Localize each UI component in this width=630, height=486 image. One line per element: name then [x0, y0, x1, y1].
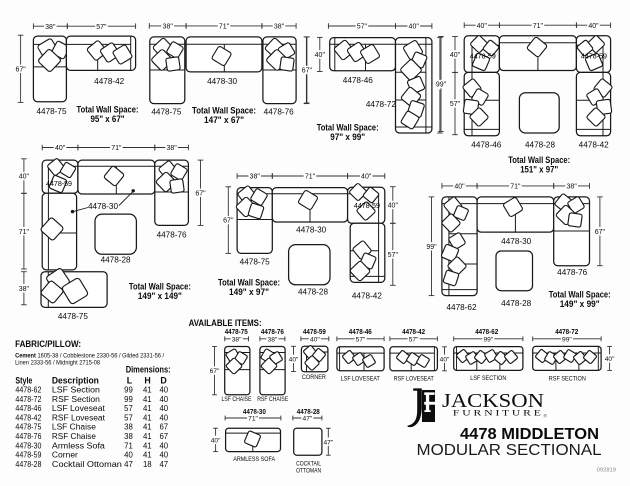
svg-text:4478-76: 4478-76 [264, 108, 294, 117]
svg-text:57": 57" [409, 336, 419, 343]
svg-text:67": 67" [595, 229, 606, 236]
svg-text:RSF Chaise: RSF Chaise [52, 432, 96, 441]
svg-text:4478-59: 4478-59 [46, 179, 72, 188]
svg-text:4478-42: 4478-42 [94, 77, 124, 86]
svg-text:41: 41 [143, 395, 152, 404]
svg-text:149" x 149": 149" x 149" [138, 291, 182, 301]
svg-text:4478-59: 4478-59 [470, 52, 496, 61]
svg-text:4478-59: 4478-59 [581, 52, 607, 61]
svg-text:4478-72: 4478-72 [366, 100, 396, 109]
svg-text:57": 57" [357, 24, 368, 31]
svg-text:4478-30: 4478-30 [88, 202, 118, 211]
svg-text:4478-62: 4478-62 [15, 386, 41, 395]
svg-text:40": 40" [450, 52, 461, 59]
svg-text:40": 40" [310, 336, 320, 343]
svg-text:RSF Section: RSF Section [52, 395, 100, 404]
svg-text:Dimensions:: Dimensions: [126, 365, 171, 375]
svg-text:Corner: Corner [52, 451, 78, 460]
svg-text:67": 67" [223, 218, 234, 225]
svg-text:4478 MIDDLETON: 4478 MIDDLETON [460, 426, 599, 443]
svg-text:67": 67" [15, 66, 26, 73]
svg-text:4478-62: 4478-62 [446, 303, 476, 312]
svg-text:4478-46: 4478-46 [343, 76, 373, 85]
svg-text:4478-75: 4478-75 [58, 312, 88, 321]
svg-text:LSF Section: LSF Section [52, 386, 100, 395]
svg-text:4478-75: 4478-75 [15, 423, 42, 432]
svg-text:149" x 99": 149" x 99" [560, 299, 600, 309]
svg-text:4478-76: 4478-76 [157, 231, 187, 240]
svg-text:4478-46: 4478-46 [349, 327, 372, 336]
svg-text:4478-42: 4478-42 [15, 413, 41, 422]
svg-text:38": 38" [45, 24, 56, 31]
svg-text:18: 18 [143, 460, 152, 469]
svg-text:40": 40" [315, 52, 326, 59]
svg-text:38": 38" [232, 336, 242, 343]
svg-text:4478-42: 4478-42 [352, 291, 382, 300]
svg-text:4478-42: 4478-42 [579, 141, 609, 150]
svg-text:4478-76: 4478-76 [15, 432, 41, 441]
svg-text:4478-75: 4478-75 [240, 258, 270, 267]
svg-text:CORNER: CORNER [302, 374, 326, 381]
svg-text:40: 40 [159, 441, 168, 450]
svg-text:57": 57" [356, 336, 366, 343]
svg-text:71: 71 [124, 441, 133, 450]
svg-text:41: 41 [143, 432, 152, 441]
svg-text:4478-46: 4478-46 [471, 141, 501, 150]
svg-text:4478-28: 4478-28 [525, 141, 555, 150]
svg-text:40": 40" [289, 357, 299, 364]
svg-text:4478-76: 4478-76 [261, 327, 284, 336]
svg-text:4478-59: 4478-59 [354, 201, 380, 210]
svg-text:MODULAR SECTIONAL: MODULAR SECTIONAL [417, 442, 602, 459]
svg-text:71": 71" [219, 24, 230, 31]
svg-text:Style: Style [15, 376, 32, 386]
svg-text:4478-76: 4478-76 [557, 268, 587, 277]
svg-text:4478-28: 4478-28 [298, 288, 328, 297]
svg-text:41: 41 [143, 423, 152, 432]
svg-text:47: 47 [159, 460, 168, 469]
svg-text:D: D [160, 376, 166, 386]
svg-text:Description: Description [52, 376, 99, 386]
svg-text:41: 41 [143, 386, 152, 395]
svg-text:Linen 2333-56 / Midnight 2715-: Linen 2333-56 / Midnight 2715-08 [15, 360, 100, 367]
svg-text:092819: 092819 [597, 468, 616, 474]
svg-text:4478-30: 4478-30 [207, 77, 237, 86]
svg-text:40": 40" [477, 23, 488, 30]
svg-text:4478-59: 4478-59 [303, 327, 326, 336]
svg-text:67: 67 [159, 423, 168, 432]
svg-text:38": 38" [274, 24, 285, 31]
svg-text:H: H [144, 376, 150, 386]
svg-text:4478-42: 4478-42 [402, 327, 425, 336]
svg-text:57": 57" [388, 252, 399, 259]
svg-text:4478-62: 4478-62 [475, 327, 498, 336]
svg-text:40": 40" [454, 184, 465, 191]
svg-text:41: 41 [143, 404, 152, 413]
svg-text:RSF LOVESEAT: RSF LOVESEAT [394, 376, 434, 383]
svg-text:40": 40" [588, 23, 599, 30]
svg-text:40: 40 [159, 386, 168, 395]
svg-text:4478-72: 4478-72 [15, 395, 41, 404]
svg-text:LSF CHAISE: LSF CHAISE [222, 396, 252, 403]
svg-text:4478-46: 4478-46 [15, 404, 41, 413]
svg-text:151" x 97": 151" x 97" [520, 164, 558, 174]
svg-text:71": 71" [533, 23, 544, 30]
svg-text:40": 40" [361, 174, 372, 181]
svg-text:40": 40" [409, 24, 420, 31]
svg-text:71": 71" [248, 416, 258, 423]
svg-text:38": 38" [250, 174, 261, 181]
svg-text:67": 67" [210, 368, 220, 375]
svg-text:Armless Sofa: Armless Sofa [52, 441, 106, 450]
svg-text:Cement 1605-38 / Cobblestone 2: Cement 1605-38 / Cobblestone 2330-56 / G… [15, 353, 164, 360]
svg-text:4478-30: 4478-30 [296, 226, 326, 235]
svg-text:40": 40" [440, 356, 450, 363]
svg-text:149" x 97": 149" x 97" [229, 287, 269, 297]
svg-text:99: 99 [124, 395, 133, 404]
svg-text:99": 99" [562, 336, 572, 343]
svg-text:99": 99" [483, 336, 493, 343]
svg-text:97" x 99": 97" x 99" [330, 132, 365, 142]
svg-text:40: 40 [159, 451, 168, 460]
svg-text:57": 57" [96, 24, 107, 31]
svg-text:40: 40 [159, 413, 168, 422]
svg-text:4478-72: 4478-72 [555, 327, 578, 336]
svg-text:38: 38 [124, 432, 133, 441]
svg-text:4478-75: 4478-75 [225, 327, 249, 336]
svg-text:OTTOMAN: OTTOMAN [296, 467, 321, 474]
svg-text:99": 99" [426, 244, 437, 251]
svg-text:67": 67" [195, 190, 206, 197]
svg-text:FABRIC/PILLOW:: FABRIC/PILLOW: [15, 339, 81, 349]
svg-text:4478-28: 4478-28 [15, 460, 41, 469]
svg-text:57: 57 [124, 413, 133, 422]
svg-text:40: 40 [159, 404, 168, 413]
svg-text:71": 71" [510, 184, 521, 191]
svg-text:40": 40" [211, 438, 221, 445]
svg-text:Cocktail Ottoman: Cocktail Ottoman [52, 460, 122, 469]
svg-text:40: 40 [124, 451, 133, 460]
svg-text:38: 38 [124, 423, 133, 432]
svg-text:71": 71" [111, 145, 122, 152]
svg-text:41: 41 [143, 451, 152, 460]
svg-text:38": 38" [166, 145, 177, 152]
svg-text:71": 71" [305, 174, 316, 181]
svg-text:40": 40" [388, 203, 399, 210]
svg-text:47": 47" [303, 416, 313, 423]
svg-text:41: 41 [143, 441, 152, 450]
svg-text:4478-75: 4478-75 [151, 108, 181, 117]
svg-text:57": 57" [450, 101, 461, 108]
svg-text:40: 40 [159, 395, 168, 404]
svg-text:RSF Loveseat: RSF Loveseat [52, 413, 106, 422]
svg-text:ARMLESS SOFA: ARMLESS SOFA [233, 456, 275, 463]
svg-text:67: 67 [159, 432, 168, 441]
svg-text:95" x 67": 95" x 67" [91, 114, 125, 124]
svg-text:38": 38" [268, 336, 278, 343]
svg-text:67": 67" [302, 68, 313, 75]
svg-text:147" x 67": 147" x 67" [204, 115, 244, 125]
svg-text:LSF Chaise: LSF Chaise [52, 423, 96, 432]
svg-text:4478-30: 4478-30 [501, 237, 531, 246]
svg-text:LSF SECTION: LSF SECTION [470, 375, 506, 382]
svg-text:4478-28: 4478-28 [101, 256, 131, 265]
svg-text:71": 71" [19, 229, 30, 236]
svg-text:99": 99" [436, 82, 447, 89]
svg-text:4478-75: 4478-75 [36, 107, 66, 116]
svg-text:47: 47 [124, 460, 133, 469]
svg-text:41: 41 [143, 413, 152, 422]
svg-text:47": 47" [323, 439, 333, 446]
svg-text:99: 99 [124, 386, 133, 395]
svg-text:RSF SECTION: RSF SECTION [549, 376, 586, 383]
svg-text:RSF CHAISE: RSF CHAISE [257, 396, 288, 403]
svg-text:LSF LOVESEAT: LSF LOVESEAT [341, 376, 380, 383]
svg-text:4478-28: 4478-28 [501, 299, 531, 308]
svg-text:38": 38" [19, 286, 30, 293]
svg-text:LSF Loveseat: LSF Loveseat [52, 404, 106, 413]
svg-text:4478-59: 4478-59 [15, 451, 41, 460]
svg-text:40": 40" [19, 174, 30, 181]
svg-text:40": 40" [605, 356, 615, 363]
svg-text:38": 38" [163, 24, 174, 31]
svg-text:4478-30: 4478-30 [15, 441, 42, 450]
svg-text:40": 40" [55, 145, 66, 152]
svg-text:F U R N I T U R E: F U R N I T U R E [453, 409, 541, 418]
svg-text:38": 38" [566, 184, 577, 191]
svg-text:57: 57 [124, 404, 133, 413]
svg-text:L: L [127, 376, 133, 386]
